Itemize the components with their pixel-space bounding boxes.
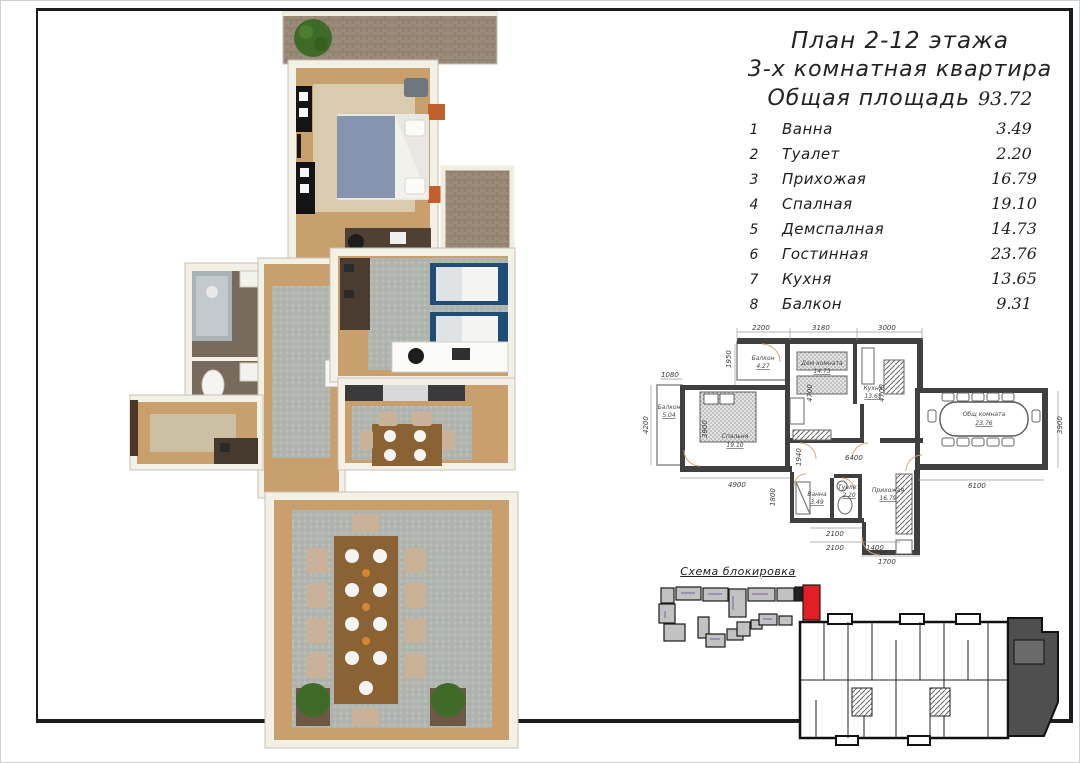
row-number: 3 — [740, 172, 768, 188]
entry-hall-3d — [130, 395, 263, 470]
svg-text:Дем комната: Дем комната — [800, 360, 843, 367]
room-area: 3.49 — [968, 119, 1060, 138]
total-area-label: Общая площадь — [767, 86, 970, 111]
room-name: Гостинная — [768, 245, 968, 263]
highlighted-apartment-section — [1008, 618, 1058, 736]
svg-text:4900: 4900 — [728, 481, 746, 489]
room-area: 23.76 — [968, 244, 1060, 263]
room-name: Прихожая — [768, 170, 968, 188]
desk-chair — [408, 348, 424, 364]
room-area: 16.79 — [968, 169, 1060, 188]
laptop-icon — [452, 348, 470, 360]
room-area-table: 1 Ванна 3.49 2 Туалет 2.20 3 Прихожая 16… — [740, 119, 1060, 319]
svg-text:2100: 2100 — [826, 530, 844, 538]
row-number: 4 — [740, 197, 768, 213]
svg-text:3900: 3900 — [701, 420, 709, 438]
row-number: 2 — [740, 147, 768, 163]
room-name: Балкон — [768, 295, 968, 313]
svg-text:Балкон: Балкон — [658, 404, 681, 411]
balcony-top-3d — [283, 12, 497, 64]
room-area: 2.20 — [968, 144, 1060, 163]
ottoman — [404, 78, 428, 97]
apartment-2d-plan: 2200 3180 3000 1080 1950 4200 3900 4700 … — [642, 324, 1064, 566]
nightstand — [428, 104, 445, 120]
room-name: Туалет — [768, 145, 968, 163]
svg-text:3180: 3180 — [812, 324, 830, 332]
svg-text:2200: 2200 — [752, 324, 770, 332]
row-number: 7 — [740, 272, 768, 288]
room-area: 13.65 — [968, 269, 1060, 288]
svg-text:2100: 2100 — [826, 544, 844, 552]
single-bed-3d — [430, 263, 508, 305]
svg-text:Спальня: Спальня — [722, 433, 749, 440]
table-row: 6 Гостинная 23.76 — [740, 244, 1060, 269]
room-area: 19.10 — [968, 194, 1060, 213]
blocking-scheme-label: Схема блокировка — [668, 565, 808, 578]
svg-text:16.79: 16.79 — [879, 495, 896, 502]
row-number: 1 — [740, 122, 768, 138]
bedroom-3d — [288, 60, 445, 268]
plant-icon — [431, 683, 465, 717]
svg-text:1940: 1940 — [795, 448, 803, 466]
table-row: 7 Кухня 13.65 — [740, 269, 1060, 294]
table-row: 2 Туалет 2.20 — [740, 144, 1060, 169]
double-bed-3d — [337, 114, 429, 200]
svg-text:Туалет: Туалет — [838, 484, 860, 491]
plant-icon — [294, 19, 332, 57]
room-name: Ванна — [768, 120, 968, 138]
svg-text:13.65: 13.65 — [864, 393, 881, 400]
tv-icon — [297, 134, 301, 158]
drawing-sheet: 2200 3180 3000 1080 1950 4200 3900 4700 … — [0, 0, 1080, 763]
svg-text:Прихожая: Прихожая — [872, 487, 905, 494]
title-block: План 2-12 этажа 3-х комнатная квартира О… — [740, 28, 1060, 319]
apartment-3d-render — [130, 12, 518, 748]
entry-door — [130, 400, 138, 456]
svg-text:1080: 1080 — [661, 371, 679, 379]
svg-text:4.27: 4.27 — [756, 363, 770, 370]
table-row: 5 Демспалная 14.73 — [740, 219, 1060, 244]
svg-text:3.49: 3.49 — [810, 499, 824, 506]
building-floor-plan — [800, 614, 1058, 745]
svg-text:1400: 1400 — [866, 544, 884, 552]
row-number: 8 — [740, 297, 768, 313]
svg-text:6100: 6100 — [968, 482, 986, 490]
room-name: Кухня — [768, 270, 968, 288]
svg-text:19.10: 19.10 — [726, 442, 743, 449]
svg-text:1950: 1950 — [725, 350, 733, 368]
plan-title: План 2-12 этажа — [740, 28, 1060, 54]
svg-text:Балкон: Балкон — [752, 355, 775, 362]
svg-text:Общ комната: Общ комната — [963, 411, 1006, 418]
room-area: 14.73 — [968, 219, 1060, 238]
svg-text:3900: 3900 — [1056, 416, 1064, 434]
svg-text:Ванна: Ванна — [807, 491, 827, 498]
svg-text:1700: 1700 — [878, 558, 896, 566]
svg-text:2.20: 2.20 — [842, 492, 856, 499]
kitchen-3d — [338, 378, 515, 470]
svg-text:5.04: 5.04 — [662, 412, 676, 419]
table-row: 1 Ванна 3.49 — [740, 119, 1060, 144]
svg-text:14.73: 14.73 — [813, 368, 830, 375]
balcony-right-3d — [443, 168, 512, 258]
svg-text:4200: 4200 — [642, 416, 650, 434]
svg-text:1800: 1800 — [769, 488, 777, 506]
plant-icon — [296, 683, 330, 717]
living-room-3d — [265, 492, 518, 748]
kids-room-3d — [330, 248, 515, 382]
total-area-value: 93.72 — [978, 88, 1032, 110]
room-name: Демспалная — [768, 220, 968, 238]
room-area: 9.31 — [968, 294, 1060, 313]
table-row: 4 Спалная 19.10 — [740, 194, 1060, 219]
table-row: 8 Балкон 9.31 — [740, 294, 1060, 319]
svg-text:4700: 4700 — [806, 384, 814, 402]
svg-text:23.76: 23.76 — [975, 420, 992, 427]
blocking-scheme — [659, 585, 820, 647]
row-number: 5 — [740, 222, 768, 238]
total-area: Общая площадь 93.72 — [740, 86, 1060, 111]
svg-text:6400: 6400 — [845, 454, 863, 462]
table-row: 3 Прихожая 16.79 — [740, 169, 1060, 194]
svg-text:3000: 3000 — [878, 324, 896, 332]
highlighted-block — [803, 585, 820, 620]
row-number: 6 — [740, 247, 768, 263]
svg-text:Кухня: Кухня — [864, 385, 883, 392]
apartment-type: 3-х комнатная квартира — [740, 57, 1060, 82]
room-name: Спалная — [768, 195, 968, 213]
